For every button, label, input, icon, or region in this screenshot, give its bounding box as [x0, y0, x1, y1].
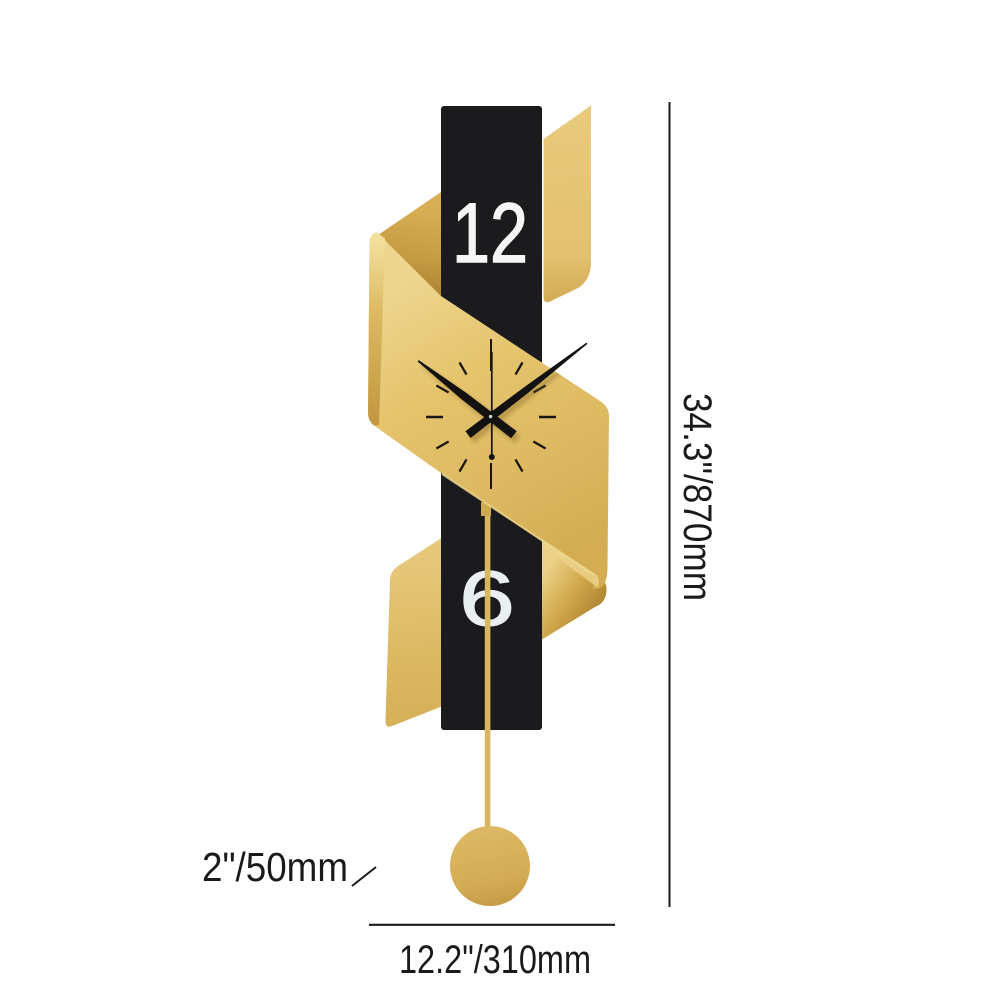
svg-text:12: 12 — [452, 186, 528, 280]
svg-text:2"/50mm: 2"/50mm — [202, 844, 348, 890]
svg-text:34.3"/870mm: 34.3"/870mm — [675, 393, 719, 601]
svg-text:12.2"/310mm: 12.2"/310mm — [399, 938, 591, 982]
